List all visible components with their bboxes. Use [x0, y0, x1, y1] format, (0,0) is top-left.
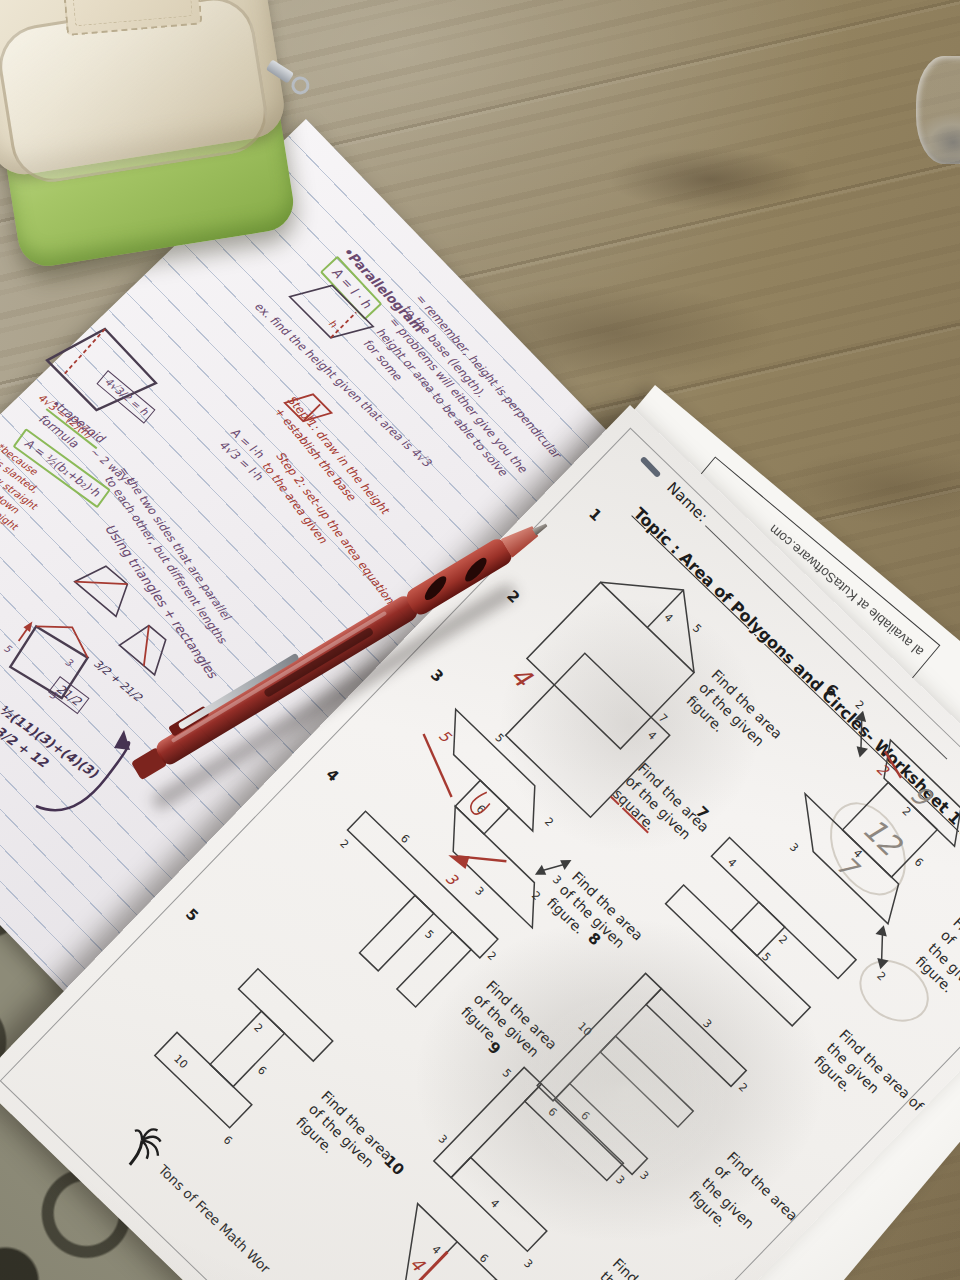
- dim-label: 4: [645, 728, 659, 742]
- dim-label: 2: [529, 889, 543, 903]
- sketch-curved-arrow: [28, 726, 138, 812]
- house-label: 5: [2, 642, 14, 655]
- tooth-1: [360, 895, 434, 971]
- dim-label: 2: [542, 815, 556, 829]
- dim-label: 5: [422, 928, 436, 942]
- dim-label: 6: [255, 1063, 269, 1077]
- dim-label: 3: [521, 1257, 535, 1271]
- dim-label: 6: [221, 1133, 235, 1147]
- arrowhead: [557, 854, 573, 870]
- arrowhead: [114, 730, 130, 750]
- arrow-curve: [36, 742, 129, 810]
- mid-square: [731, 902, 785, 956]
- dim-label: 6: [477, 1251, 491, 1265]
- dim-label: 6: [398, 832, 412, 846]
- arrowhead: [855, 711, 871, 727]
- sketch-label: h: [326, 317, 339, 330]
- red-handwriting: 5: [435, 726, 455, 747]
- dim-label: 3: [613, 1173, 627, 1187]
- red-slash: [406, 734, 470, 797]
- glass-object: [916, 56, 960, 164]
- dim-label: 10: [171, 1052, 190, 1071]
- pencil-handwriting: 12: [856, 811, 909, 864]
- bottom-triangle: [315, 1253, 450, 1280]
- dim-label: 4: [661, 611, 675, 625]
- arrowhead: [852, 742, 868, 758]
- house-label: 3: [63, 656, 75, 669]
- height-line: [63, 329, 104, 375]
- arrowhead: [875, 925, 891, 941]
- dim-label: 5: [690, 622, 704, 636]
- arrowhead: [873, 954, 889, 970]
- dim-label: 4: [488, 1197, 502, 1211]
- desk-photo-scene: •Parallelogram A = l · h = remember, hei…: [0, 0, 960, 1280]
- arrow-line: [845, 718, 877, 751]
- dim-label: 4: [725, 856, 739, 870]
- red-handwriting: 2: [873, 760, 893, 781]
- tooth-2: [600, 1036, 693, 1127]
- pencil-case: [0, 0, 309, 286]
- tooth-2: [397, 931, 471, 1007]
- dim-label: 2: [251, 1021, 265, 1035]
- dim-label: 2: [337, 837, 351, 851]
- dim-label: 6: [912, 855, 926, 869]
- dim-label: 5: [492, 731, 506, 745]
- dim-label: 2: [736, 1081, 750, 1095]
- dim-label: 3: [787, 841, 801, 855]
- dim-label: 4: [429, 1243, 443, 1257]
